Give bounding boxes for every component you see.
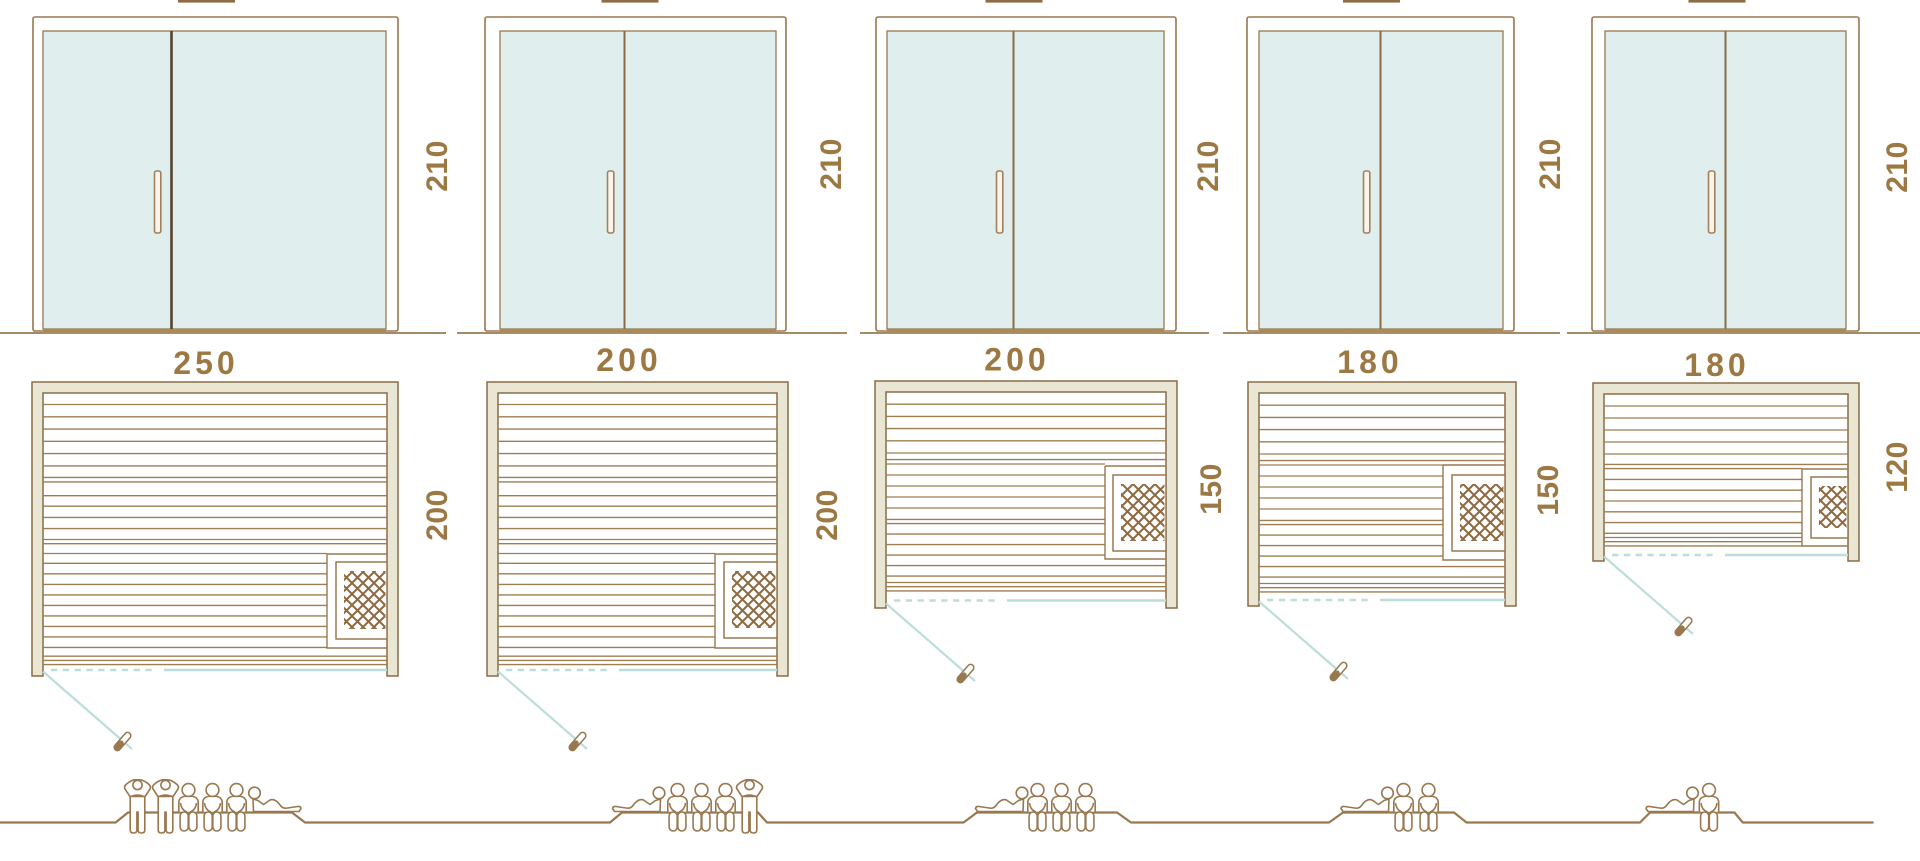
svg-text:120: 120	[1881, 441, 1914, 493]
svg-text:210: 210	[1881, 141, 1914, 193]
svg-text:150: 150	[1195, 463, 1228, 515]
svg-text:150: 150	[1532, 464, 1565, 516]
svg-text:200: 200	[421, 489, 454, 541]
svg-text:210: 210	[1534, 138, 1567, 190]
svg-text:210: 210	[1192, 140, 1225, 192]
svg-text:180: 180	[1684, 347, 1749, 383]
svg-text:210: 210	[815, 138, 848, 190]
svg-text:200: 200	[984, 342, 1049, 378]
svg-text:180: 180	[1337, 344, 1402, 380]
svg-text:210: 210	[421, 140, 454, 192]
svg-text:250: 250	[173, 345, 238, 381]
svg-text:200: 200	[811, 489, 844, 541]
svg-text:200: 200	[596, 342, 661, 378]
